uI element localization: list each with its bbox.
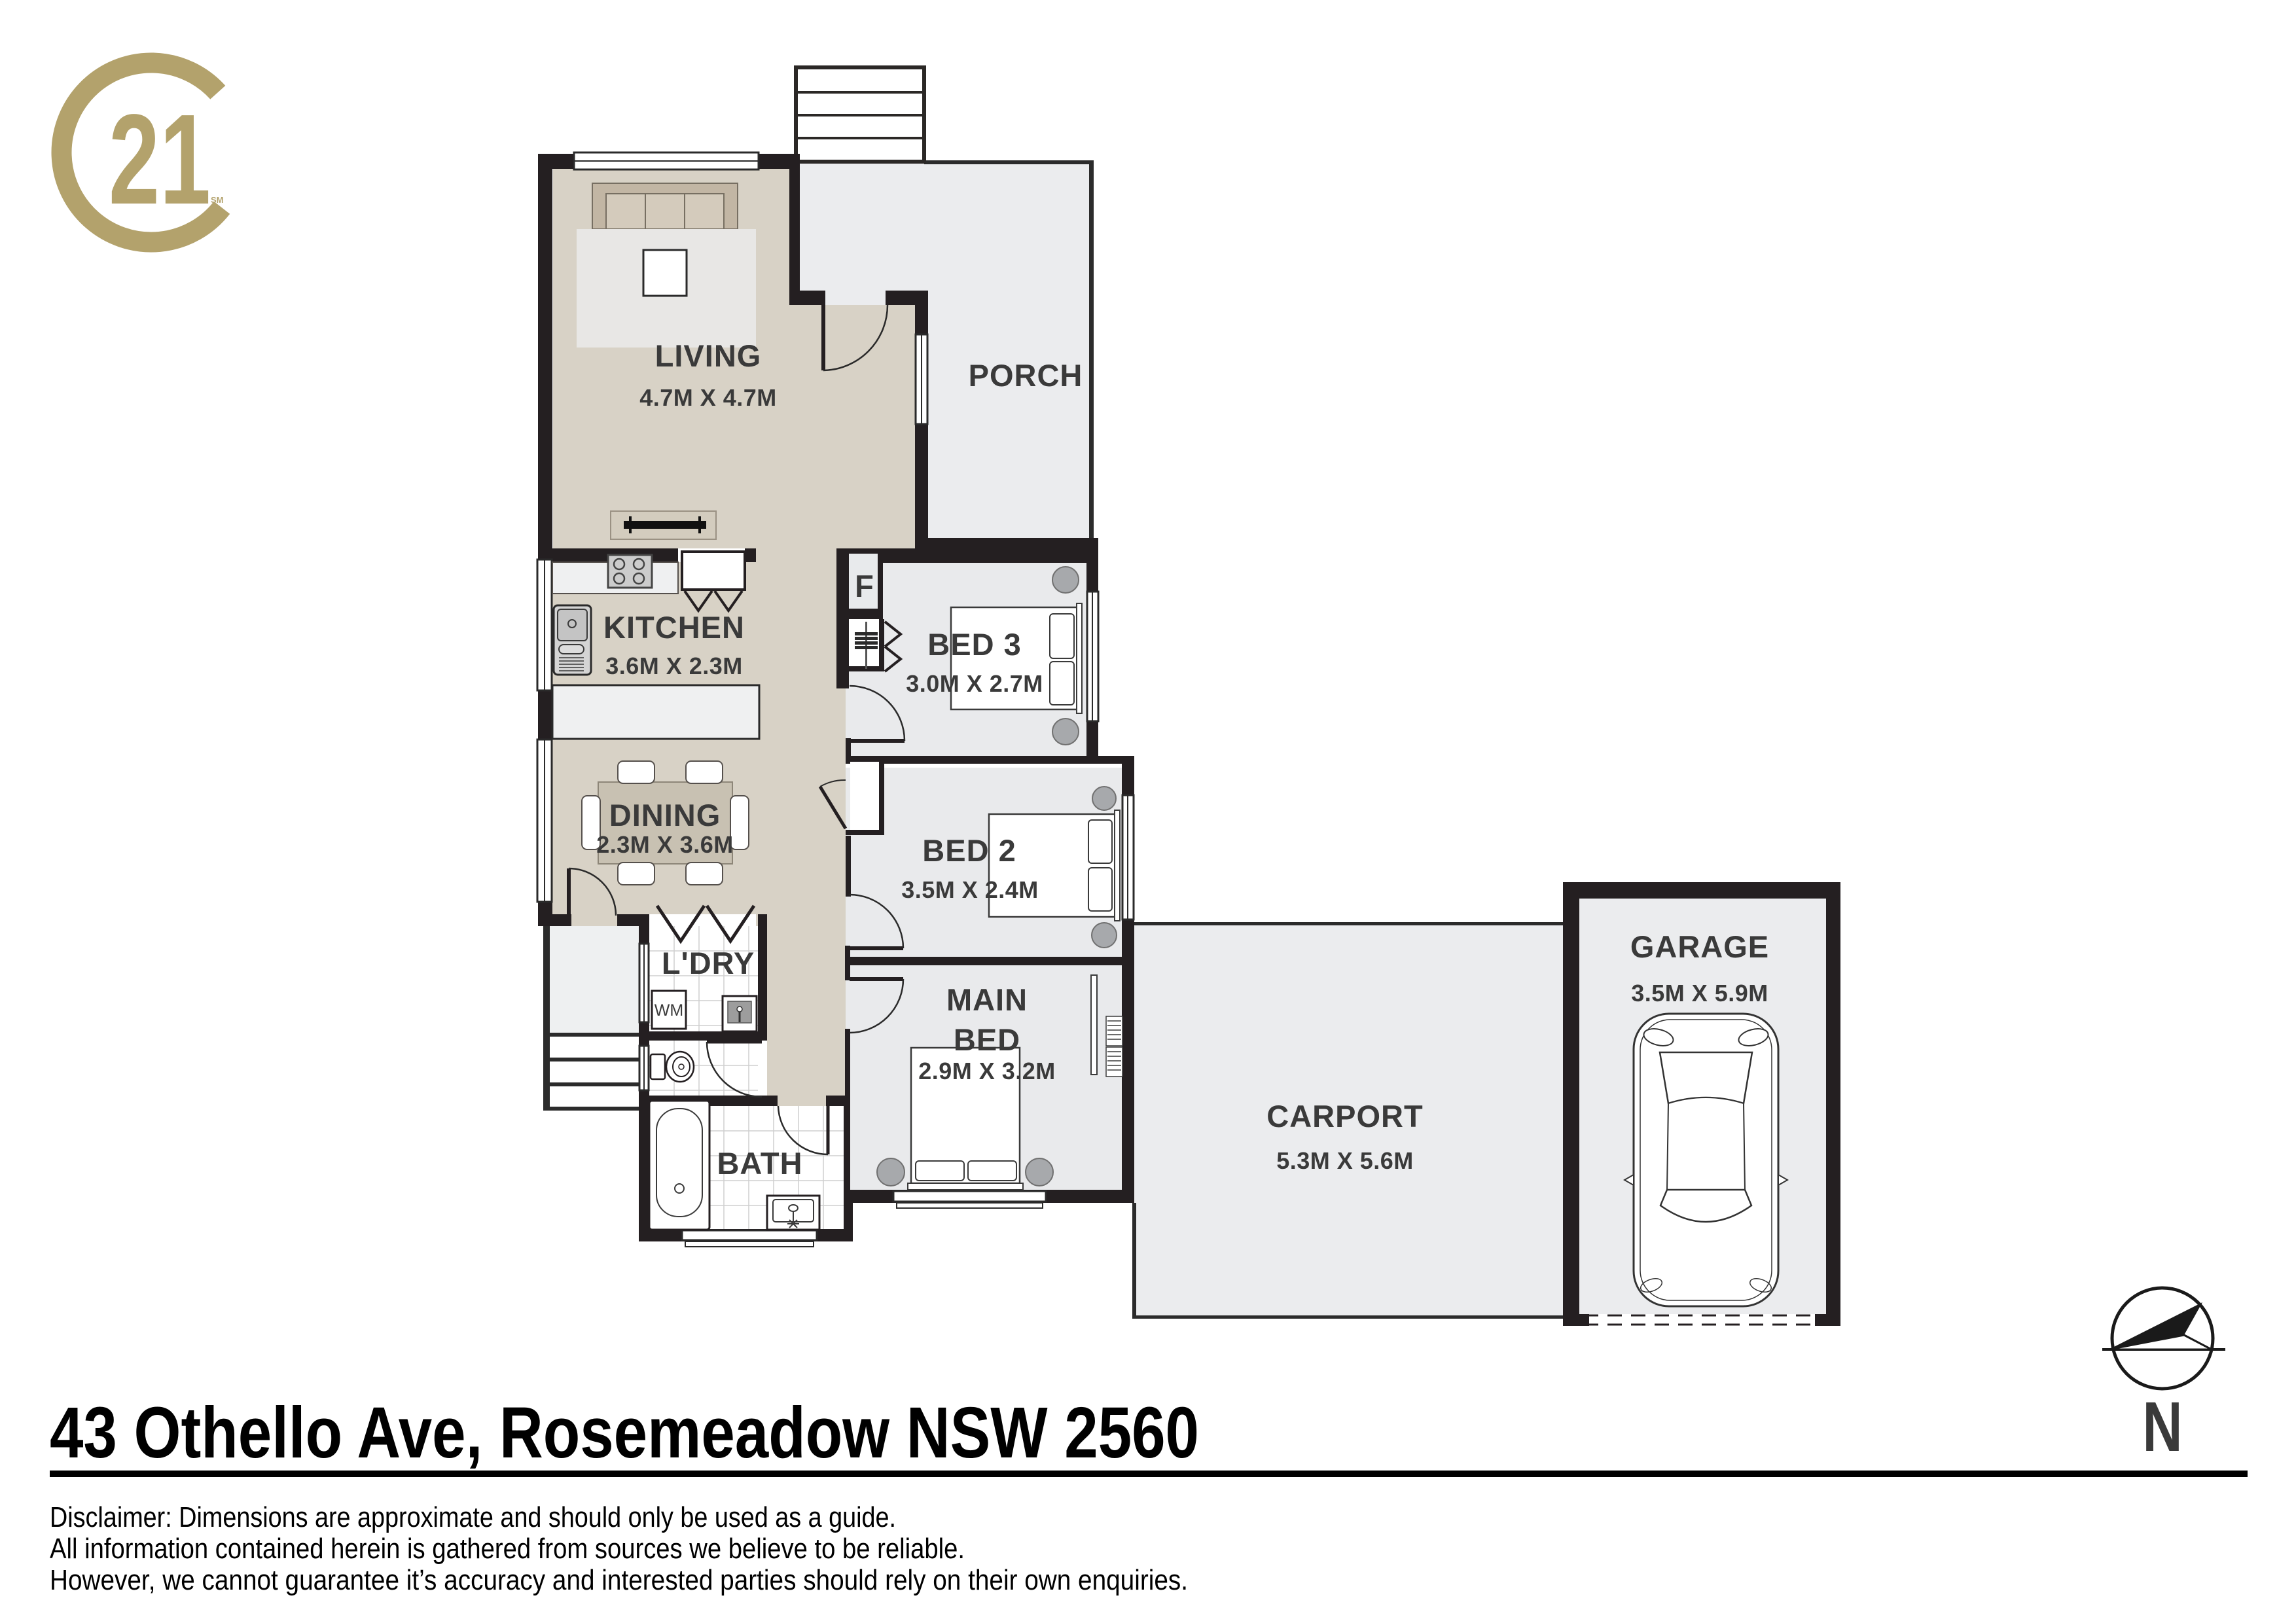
svg-text:All information contained here: All information contained herein is gath… <box>50 1533 965 1565</box>
svg-text:3.5M X 5.9M: 3.5M X 5.9M <box>1631 980 1768 1007</box>
svg-text:WM: WM <box>655 1001 683 1020</box>
svg-text:5.3M X 5.6M: 5.3M X 5.6M <box>1276 1147 1414 1174</box>
svg-text:SM: SM <box>211 195 224 205</box>
svg-text:However, we cannot guarantee i: However, we cannot guarantee it’s accura… <box>50 1564 1188 1596</box>
svg-text:BATH: BATH <box>717 1146 802 1181</box>
svg-text:4.7M X 4.7M: 4.7M X 4.7M <box>639 384 777 411</box>
svg-text:2.9M X 3.2M: 2.9M X 3.2M <box>918 1058 1056 1084</box>
svg-text:BED: BED <box>954 1022 1020 1057</box>
svg-text:3.6M X 2.3M: 3.6M X 2.3M <box>605 652 743 679</box>
svg-text:PORCH: PORCH <box>969 358 1083 393</box>
svg-text:3.0M X 2.7M: 3.0M X 2.7M <box>906 670 1043 697</box>
svg-text:GARAGE: GARAGE <box>1630 929 1769 964</box>
svg-text:DINING: DINING <box>609 798 721 832</box>
svg-text:43 Othello Ave, Rosemeadow NSW: 43 Othello Ave, Rosemeadow NSW 2560 <box>50 1393 1199 1473</box>
svg-text:21: 21 <box>109 88 211 231</box>
svg-text:Disclaimer: Dimensions are app: Disclaimer: Dimensions are approximate a… <box>50 1501 896 1533</box>
svg-text:BED 2: BED 2 <box>922 833 1016 868</box>
svg-text:CARPORT: CARPORT <box>1266 1099 1423 1133</box>
svg-text:3.5M X 2.4M: 3.5M X 2.4M <box>901 876 1039 903</box>
svg-text:F: F <box>855 569 874 603</box>
svg-text:L'DRY: L'DRY <box>662 946 755 980</box>
svg-text:MAIN: MAIN <box>946 982 1028 1017</box>
svg-text:BED 3: BED 3 <box>927 627 1021 662</box>
svg-text:KITCHEN: KITCHEN <box>603 610 745 645</box>
svg-text:N: N <box>2143 1387 2183 1466</box>
svg-text:2.3M X 3.6M: 2.3M X 3.6M <box>596 831 734 858</box>
svg-text:LIVING: LIVING <box>655 338 762 373</box>
